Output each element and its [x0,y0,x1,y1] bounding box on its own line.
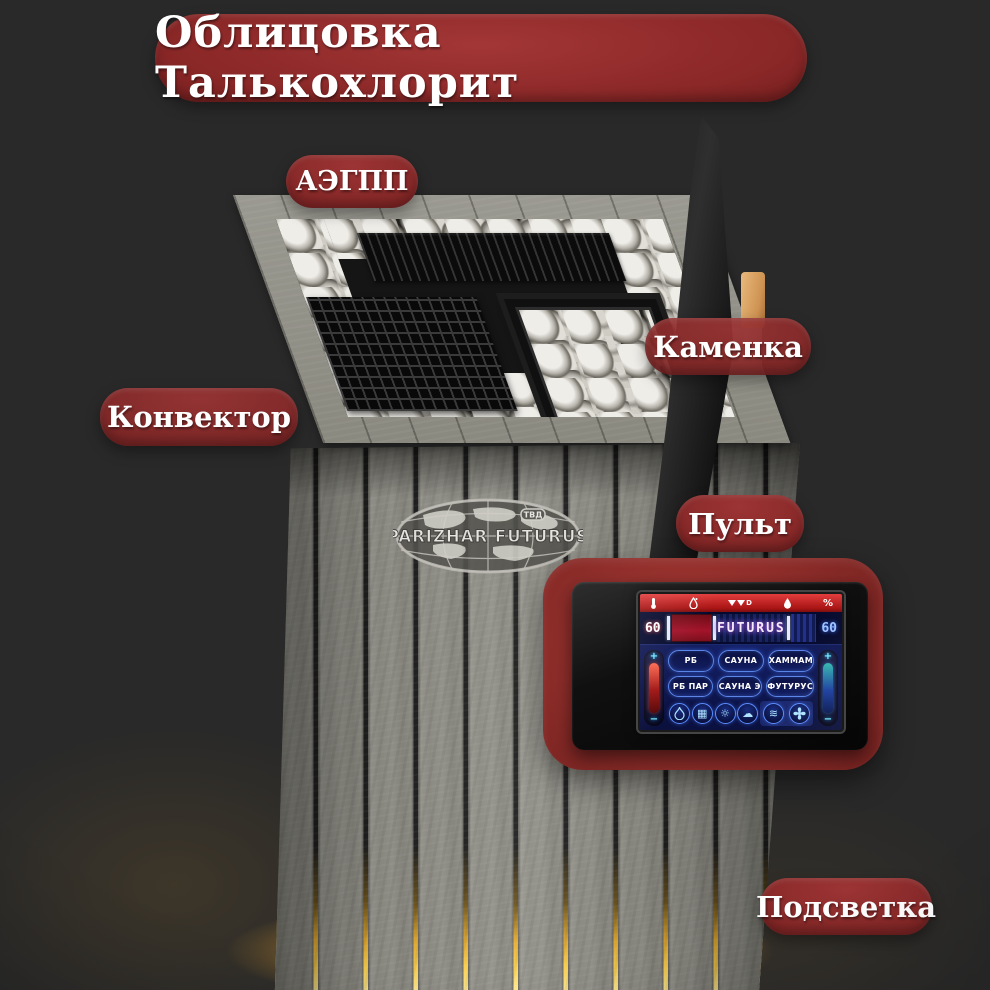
aegpp-steam-grid [357,233,626,281]
svg-text:ТВД: ТВД [524,511,543,520]
svg-text:PARIZHAR FUTURUS: PARIZHAR FUTURUS [393,527,583,546]
humidity-percent-label: % [823,598,833,609]
function-icon-row: ▦ ☼ ☁ ≋ [668,701,814,726]
label-aegpp-text: АЭГПП [295,166,408,197]
title-text: Облицовка Талькохлорит [155,8,807,108]
mode-button-rb[interactable]: РБ [668,650,714,672]
temperature-gauge-panel [671,614,712,642]
brand-mark: D [728,599,753,607]
model-name-panel: FUTURUS [717,614,786,642]
scene: ТВД PARIZHAR FUTURUS Облицовка Талькохло… [0,0,990,990]
fan-icon[interactable] [789,703,810,724]
brand-triangle [728,600,736,606]
brand-logo: ТВД PARIZHAR FUTURUS [393,497,583,577]
label-konvektor-text: Конвектор [107,400,291,434]
model-name: FUTURUS [717,621,786,636]
mode-button-futurus[interactable]: ФУТУРУС [766,676,814,698]
waves-glyph: ≋ [769,708,778,719]
temperature-readout: 60 [640,612,666,644]
brand-letter: D [746,599,753,607]
display-divider [667,616,670,640]
brand-triangle [737,600,745,606]
thermometer-icon [649,597,658,609]
display-divider [787,616,790,640]
remote-display-strip: 60 FUTURUS 60 [640,612,842,645]
humidity-gauge-panel [791,614,817,642]
temperature-slider[interactable]: + − [644,650,664,726]
label-podsvetka-text: Подсветка [756,890,936,924]
mode-button-rb-par[interactable]: РБ ПАР [668,676,713,698]
humidity-slider-track[interactable] [823,663,833,713]
mode-button-sauna-e[interactable]: САУНА Э [717,676,762,698]
light-glyph: ☼ [720,708,730,719]
mode-row-2: РБ ПАР САУНА Э ФУТУРУС [668,676,814,698]
humidity-readout: 60 [816,612,842,644]
plus-icon[interactable]: + [824,652,832,661]
mode-button-hammam[interactable]: ХАММАМ [768,650,814,672]
steam-temp-icon [689,597,698,609]
minus-icon[interactable]: − [650,715,658,724]
label-pult: Пульт [676,495,804,552]
mode-buttons: РБ САУНА ХАММАМ РБ ПАР САУНА Э ФУТУРУС [668,650,814,726]
display-divider [713,616,716,640]
humidity-slider[interactable]: + − [818,650,838,726]
active-icon-group: ≋ [760,701,813,726]
flame-icon[interactable] [669,703,690,724]
temperature-slider-track[interactable] [649,663,659,713]
light-icon[interactable]: ☼ [715,703,736,724]
mode-row-1: РБ САУНА ХАММАМ [668,650,814,672]
label-podsvetka: Подсветка [760,878,932,935]
convector-grid [306,297,517,411]
remote-control: D % 60 FUTURUS 6 [572,582,868,750]
remote-statusbar: D % [640,594,842,612]
steam-cloud-icon[interactable]: ☁ [737,703,758,724]
label-kamenka-text: Каменка [653,330,803,364]
humidity-icon [783,597,792,609]
remote-screen: D % 60 FUTURUS 6 [638,592,844,732]
steam-waves-icon[interactable]: ≋ [763,703,784,724]
label-konvektor: Конвектор [100,388,298,446]
label-kamenka: Каменка [645,318,811,375]
mode-button-sauna[interactable]: САУНА [718,650,764,672]
minus-icon[interactable]: − [824,715,832,724]
plus-icon[interactable]: + [650,652,658,661]
cloud-glyph: ☁ [742,708,753,719]
stone-grid-icon[interactable]: ▦ [692,703,713,724]
label-aegpp: АЭГПП [286,155,418,208]
remote-highlight-card: D % 60 FUTURUS 6 [543,558,883,770]
grid-glyph: ▦ [697,708,707,719]
remote-main-area: + − РБ САУНА ХАММАМ РБ ПАР САУНА Э [640,645,842,730]
title-banner: Облицовка Талькохлорит [155,14,807,102]
label-pult-text: Пульт [688,507,792,541]
